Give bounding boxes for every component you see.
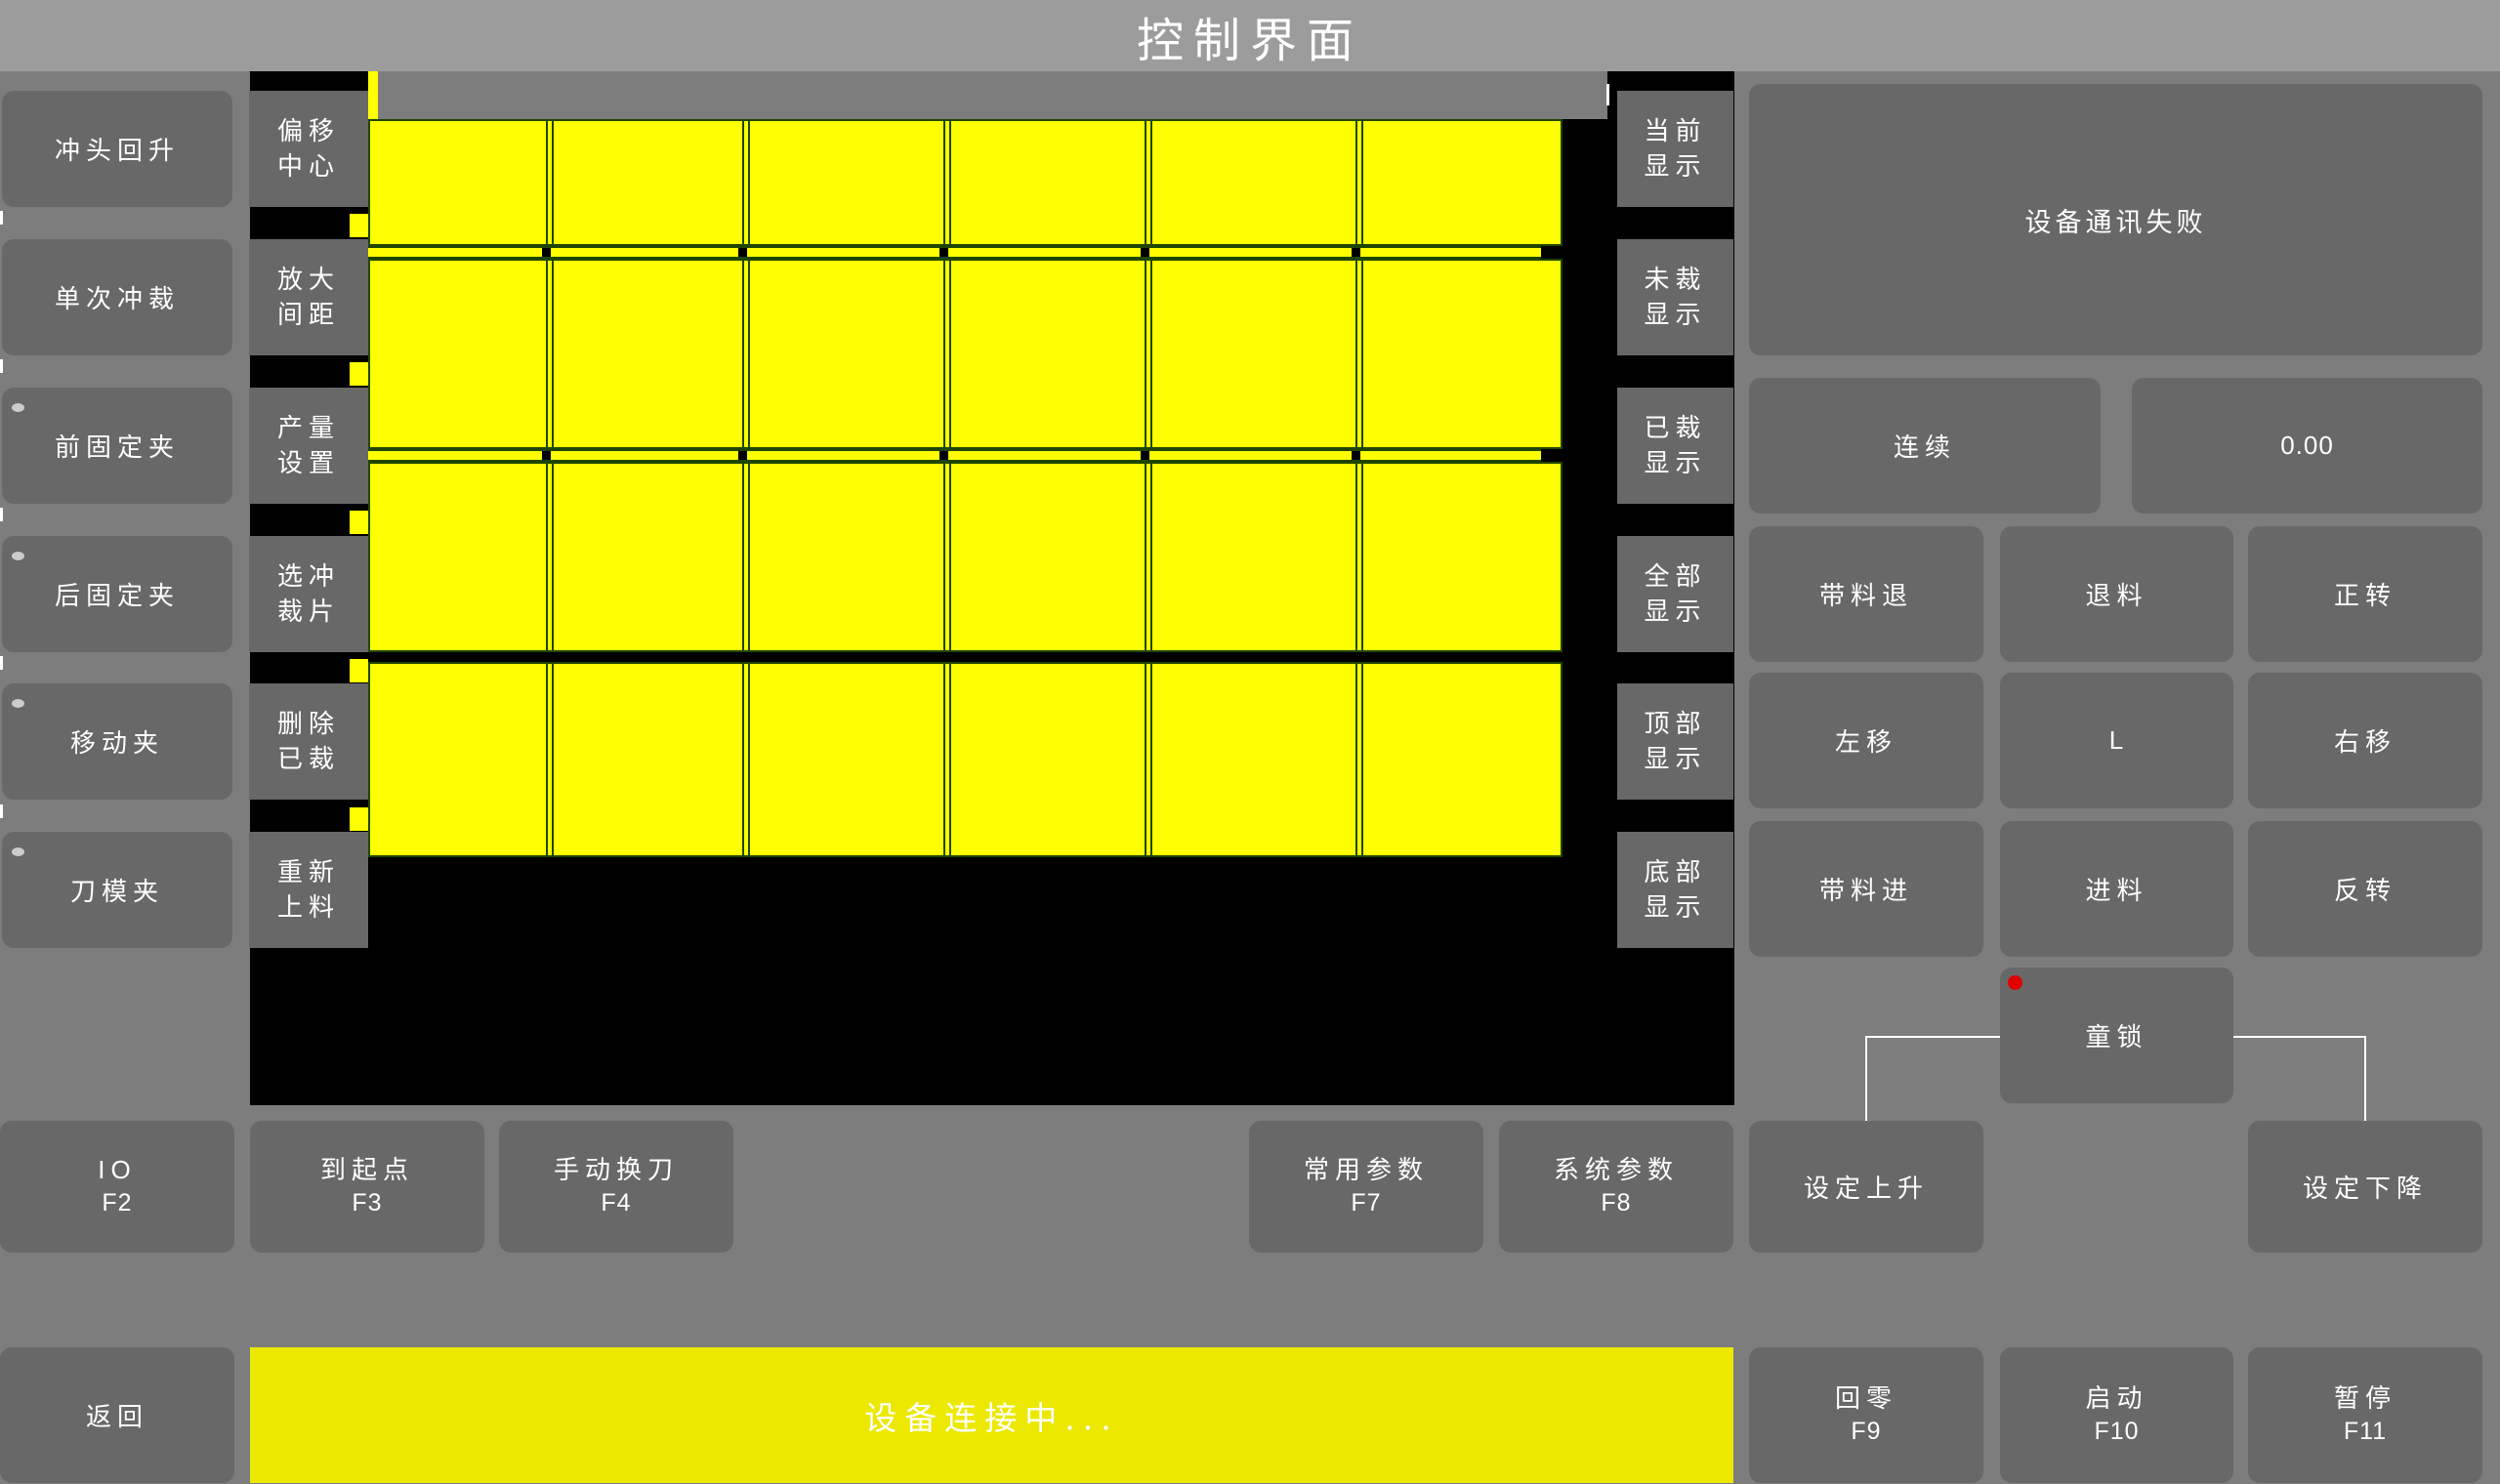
piece-divider-line	[546, 119, 548, 246]
button-label: 已裁	[1644, 411, 1706, 445]
button-label: 返回	[86, 1397, 148, 1433]
fkey-label: F7	[1351, 1187, 1381, 1220]
sheet-edge-tab	[350, 214, 368, 237]
piece-divider-line	[943, 462, 945, 652]
piece-divider-line	[1150, 119, 1152, 246]
button-label: 到起点	[320, 1153, 414, 1187]
offset-center-button[interactable]: 偏移 中心	[249, 91, 368, 207]
common-params-f7-button[interactable]: 常用参数 F7	[1249, 1121, 1483, 1253]
piece-divider-line	[552, 662, 554, 857]
button-label: 系统参数	[1554, 1153, 1679, 1187]
web-strip-end	[1541, 449, 1570, 462]
set-fall-button[interactable]: 设定下降	[2248, 1121, 2482, 1253]
button-label: 中心	[277, 149, 340, 184]
start-f10-button[interactable]: 启动 F10	[2000, 1347, 2233, 1483]
material-sheet[interactable]	[368, 119, 1562, 857]
moving-clamp-button[interactable]: 移动夹	[2, 683, 232, 800]
move-left-button[interactable]: 左移	[1749, 673, 1983, 808]
button-label: 产量	[277, 411, 340, 445]
piece-divider-line	[748, 662, 750, 857]
piece-divider-line	[742, 462, 744, 652]
edge-tick	[0, 804, 3, 818]
button-label: 显示	[1644, 446, 1706, 480]
piece-divider-line	[1145, 662, 1146, 857]
piece-divider-line	[748, 259, 750, 449]
button-label: 常用参数	[1304, 1153, 1429, 1187]
button-label: 间距	[277, 298, 340, 332]
edge-tick	[0, 656, 3, 670]
button-label: 左移	[1835, 722, 1897, 759]
piece-divider-line	[1355, 119, 1357, 246]
button-label: 连续	[1894, 428, 1956, 464]
forward-rotate-button[interactable]: 正转	[2248, 526, 2482, 662]
button-label: 移动夹	[70, 723, 164, 760]
edge-tick	[0, 359, 3, 373]
io-f2-button[interactable]: IO F2	[0, 1121, 234, 1253]
eject-material-button[interactable]: 退料	[2000, 526, 2233, 662]
status-bar: 设备连接中...	[250, 1347, 1733, 1483]
sheet-piece-row	[368, 662, 1562, 857]
set-rise-button[interactable]: 设定上升	[1749, 1121, 1983, 1253]
button-label: 显示	[1644, 298, 1706, 332]
edge-tick	[0, 508, 3, 521]
button-label: 显示	[1644, 149, 1706, 184]
button-label: 进料	[2085, 871, 2147, 907]
cut-notch	[738, 451, 747, 460]
punch-raise-button[interactable]: 冲头回升	[2, 91, 232, 207]
piece-divider-line	[943, 662, 945, 857]
fkey-label: F2	[102, 1187, 132, 1220]
cut-notch	[939, 248, 948, 257]
button-label: 后固定夹	[55, 576, 180, 612]
title-bar: 控制界面	[0, 0, 2500, 71]
button-label: 退料	[2085, 576, 2147, 612]
button-label: 手动换刀	[554, 1153, 679, 1187]
button-label: 显示	[1644, 890, 1706, 925]
cut-row-gap	[368, 652, 1562, 662]
piece-divider-line	[1355, 662, 1357, 857]
piece-divider-line	[742, 662, 744, 857]
sheet-preview-canvas[interactable]	[250, 71, 1734, 1105]
alert-dot	[2008, 975, 2022, 990]
piece-divider-line	[949, 119, 951, 246]
web-strip	[360, 246, 1541, 259]
button-label: 冲头回升	[55, 131, 180, 167]
reverse-rotate-button[interactable]: 反转	[2248, 821, 2482, 957]
device-message-box: 设备通讯失败	[1749, 84, 2482, 355]
button-label: 正转	[2334, 576, 2396, 612]
device-message-text: 设备通讯失败	[2025, 201, 2207, 239]
status-dot	[12, 552, 24, 560]
button-label: 刀模夹	[70, 872, 164, 908]
piece-divider-line	[1150, 259, 1152, 449]
display-uncut-button[interactable]: 未裁 显示	[1617, 239, 1733, 355]
back-button[interactable]: 返回	[0, 1347, 234, 1483]
piece-divider-line	[1145, 259, 1146, 449]
button-label: 裁片	[277, 595, 340, 629]
sheet-top-sliver	[368, 71, 378, 119]
piece-divider-line	[1145, 119, 1146, 246]
button-label: 带料进	[1819, 871, 1913, 907]
fkey-label: F9	[1851, 1416, 1881, 1449]
button-label: 童锁	[2085, 1017, 2147, 1053]
canvas-top-gap	[378, 71, 1607, 119]
display-bottom-button[interactable]: 底部 显示	[1617, 832, 1733, 948]
button-label: 设定下降	[2303, 1169, 2428, 1205]
button-label: 全部	[1644, 559, 1706, 594]
piece-divider-line	[742, 259, 744, 449]
button-label: 偏移	[277, 114, 340, 148]
value-text: 0.00	[2280, 431, 2334, 461]
piece-divider-line	[552, 119, 554, 246]
button-label: 选冲	[277, 559, 340, 594]
piece-divider-line	[949, 462, 951, 652]
button-label: 删除	[277, 707, 340, 741]
select-piece-button[interactable]: 选冲 裁片	[249, 536, 368, 652]
delete-cut-button[interactable]: 删除 已裁	[249, 683, 368, 800]
cut-notch	[738, 248, 747, 257]
to-origin-f3-button[interactable]: 到起点 F3	[250, 1121, 484, 1253]
button-label: L	[2109, 725, 2124, 756]
web-strip	[360, 449, 1541, 462]
piece-divider-line	[1355, 259, 1357, 449]
cut-notch	[1141, 248, 1149, 257]
button-label: 上料	[277, 890, 340, 925]
piece-divider-line	[949, 662, 951, 857]
cut-notch	[1141, 451, 1149, 460]
fkey-label: F10	[2094, 1416, 2139, 1449]
piece-divider-line	[1361, 662, 1363, 857]
pause-f11-button[interactable]: 暂停 F11	[2248, 1347, 2482, 1483]
button-label: 设置	[277, 446, 340, 480]
reload-material-button[interactable]: 重新 上料	[249, 832, 368, 948]
cut-notch	[542, 248, 551, 257]
piece-divider-line	[943, 119, 945, 246]
piece-divider-line	[1150, 462, 1152, 652]
button-label: 设定上升	[1804, 1169, 1929, 1205]
sheet-piece-row	[368, 119, 1562, 246]
piece-divider-line	[742, 119, 744, 246]
value-display[interactable]: 0.00	[2132, 378, 2482, 514]
button-label: 回零	[1835, 1381, 1897, 1416]
piece-divider-line	[748, 119, 750, 246]
piece-divider-line	[546, 462, 548, 652]
button-label: 前固定夹	[55, 428, 180, 464]
piece-divider-line	[943, 259, 945, 449]
button-label: 当前	[1644, 114, 1706, 148]
piece-divider-line	[1145, 462, 1146, 652]
cut-notch	[939, 451, 948, 460]
piece-divider-line	[1361, 119, 1363, 246]
button-label: 显示	[1644, 742, 1706, 776]
l-button[interactable]: L	[2000, 673, 2233, 808]
display-all-button[interactable]: 全部 显示	[1617, 536, 1733, 652]
system-params-f8-button[interactable]: 系统参数 F8	[1499, 1121, 1733, 1253]
fkey-label: F3	[352, 1187, 382, 1220]
button-label: 重新	[277, 855, 340, 889]
manual-tool-change-f4-button[interactable]: 手动换刀 F4	[499, 1121, 733, 1253]
sheet-edge-tab	[350, 659, 368, 682]
fkey-label: F11	[2344, 1416, 2387, 1449]
strip-feed-button[interactable]: 带料进	[1749, 821, 1983, 957]
edge-tick	[1606, 84, 1609, 105]
button-label: 带料退	[1819, 576, 1913, 612]
zoom-gap-button[interactable]: 放大 间距	[249, 239, 368, 355]
button-label: 已裁	[277, 742, 340, 776]
display-cut-button[interactable]: 已裁 显示	[1617, 388, 1733, 504]
sheet-edge-tab	[350, 807, 368, 831]
button-label: 显示	[1644, 595, 1706, 629]
piece-divider-line	[1355, 462, 1357, 652]
front-clamp-button[interactable]: 前固定夹	[2, 388, 232, 504]
move-right-button[interactable]: 右移	[2248, 673, 2482, 808]
cut-notch	[1352, 451, 1360, 460]
single-punch-button[interactable]: 单次冲裁	[2, 239, 232, 355]
status-text: 设备连接中...	[864, 1392, 1118, 1439]
strip-back-button[interactable]: 带料退	[1749, 526, 1983, 662]
button-label: 暂停	[2334, 1381, 2396, 1416]
home-f9-button[interactable]: 回零 F9	[1749, 1347, 1983, 1483]
display-top-button[interactable]: 顶部 显示	[1617, 683, 1733, 800]
output-settings-button[interactable]: 产量 设置	[249, 388, 368, 504]
display-current-button[interactable]: 当前 显示	[1617, 91, 1733, 207]
piece-divider-line	[552, 462, 554, 652]
button-label: 右移	[2334, 722, 2396, 759]
status-dot	[12, 847, 24, 856]
fkey-label: F8	[1601, 1187, 1631, 1220]
status-dot	[12, 699, 24, 708]
button-label: 底部	[1644, 855, 1706, 889]
piece-divider-line	[552, 259, 554, 449]
continuous-mode-button[interactable]: 连续	[1749, 378, 2101, 514]
button-label: 反转	[2334, 871, 2396, 907]
button-label: IO	[98, 1153, 136, 1187]
button-label: 未裁	[1644, 263, 1706, 297]
edge-tick	[0, 211, 3, 225]
piece-divider-line	[546, 662, 548, 857]
piece-divider-line	[1361, 462, 1363, 652]
control-screen: 控制界面 冲头回升 单次冲裁 前固定夹 后固定夹 移动夹 刀模夹	[0, 0, 2500, 1484]
button-label: 放大	[277, 263, 340, 297]
piece-divider-line	[1361, 259, 1363, 449]
page-title: 控制界面	[1137, 2, 1363, 70]
status-dot	[12, 403, 24, 412]
piece-divider-line	[949, 259, 951, 449]
child-lock-button[interactable]: 童锁	[2000, 968, 2233, 1103]
cut-notch	[1352, 248, 1360, 257]
button-label: 启动	[2085, 1381, 2147, 1416]
sheet-piece-row	[368, 259, 1562, 449]
web-strip-end	[1541, 246, 1570, 259]
feed-material-button[interactable]: 进料	[2000, 821, 2233, 957]
sheet-edge-tab	[350, 511, 368, 534]
piece-divider-line	[546, 259, 548, 449]
piece-divider-line	[1150, 662, 1152, 857]
rear-clamp-button[interactable]: 后固定夹	[2, 536, 232, 652]
button-label: 顶部	[1644, 707, 1706, 741]
die-clamp-button[interactable]: 刀模夹	[2, 832, 232, 948]
sheet-edge-tab	[350, 362, 368, 386]
sheet-piece-row	[368, 462, 1562, 652]
piece-divider-line	[748, 462, 750, 652]
button-label: 单次冲裁	[55, 279, 180, 315]
cut-notch	[542, 451, 551, 460]
fkey-label: F4	[601, 1187, 631, 1220]
